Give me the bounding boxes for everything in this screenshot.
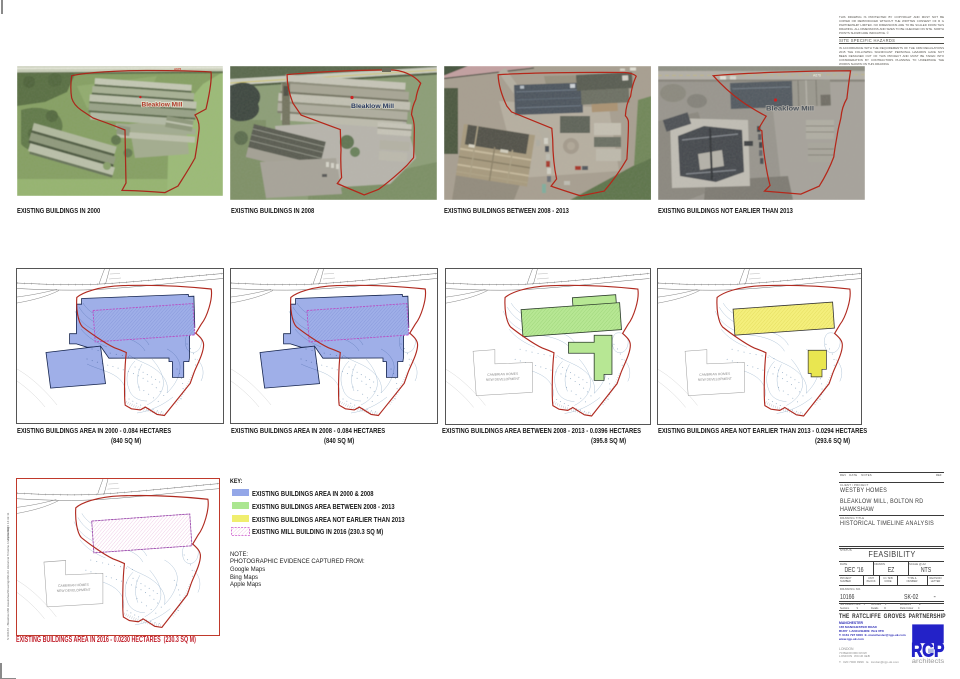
svg-text:A676: A676 [174,67,182,71]
svg-text:A676: A676 [813,74,821,78]
svg-text:Bleaklow Mill: Bleaklow Mill [766,106,814,113]
svg-text:architects: architects [912,657,945,663]
svg-text:Bleaklow Mill: Bleaklow Mill [142,102,183,109]
svg-text:Bleaklow Mill: Bleaklow Mill [351,103,394,110]
